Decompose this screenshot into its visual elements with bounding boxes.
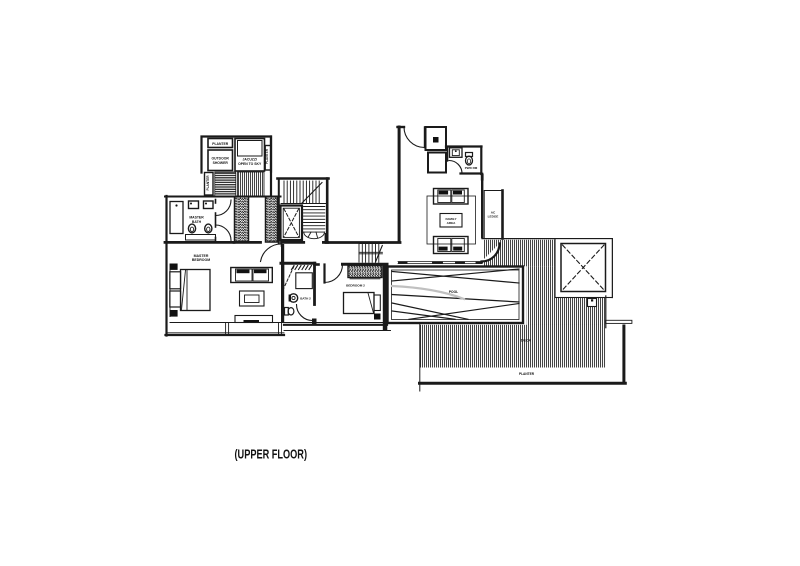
svg-text:LEDGE: LEDGE	[488, 215, 499, 219]
svg-text:BEDROOM 2: BEDROOM 2	[346, 283, 365, 287]
svg-text:DECK: DECK	[521, 339, 532, 343]
svg-text:PWD RM: PWD RM	[465, 166, 478, 170]
svg-text:SHOWER: SHOWER	[213, 161, 229, 165]
svg-text:BEDROOM: BEDROOM	[192, 258, 210, 262]
svg-text:OPEN TO SKY: OPEN TO SKY	[238, 162, 262, 166]
svg-text:PLANTER: PLANTER	[265, 148, 269, 164]
svg-text:POOL: POOL	[449, 290, 458, 294]
svg-text:AREA: AREA	[447, 221, 457, 225]
svg-text:(UPPER FLOOR): (UPPER FLOOR)	[235, 447, 308, 462]
svg-text:PLANTER: PLANTER	[212, 142, 229, 146]
svg-text:PLANTER: PLANTER	[519, 372, 535, 376]
svg-text:MASTER: MASTER	[194, 254, 209, 258]
svg-text:PLANTER: PLANTER	[206, 175, 210, 191]
svg-text:BATH 2: BATH 2	[300, 296, 311, 300]
svg-text:BATH: BATH	[192, 220, 202, 224]
